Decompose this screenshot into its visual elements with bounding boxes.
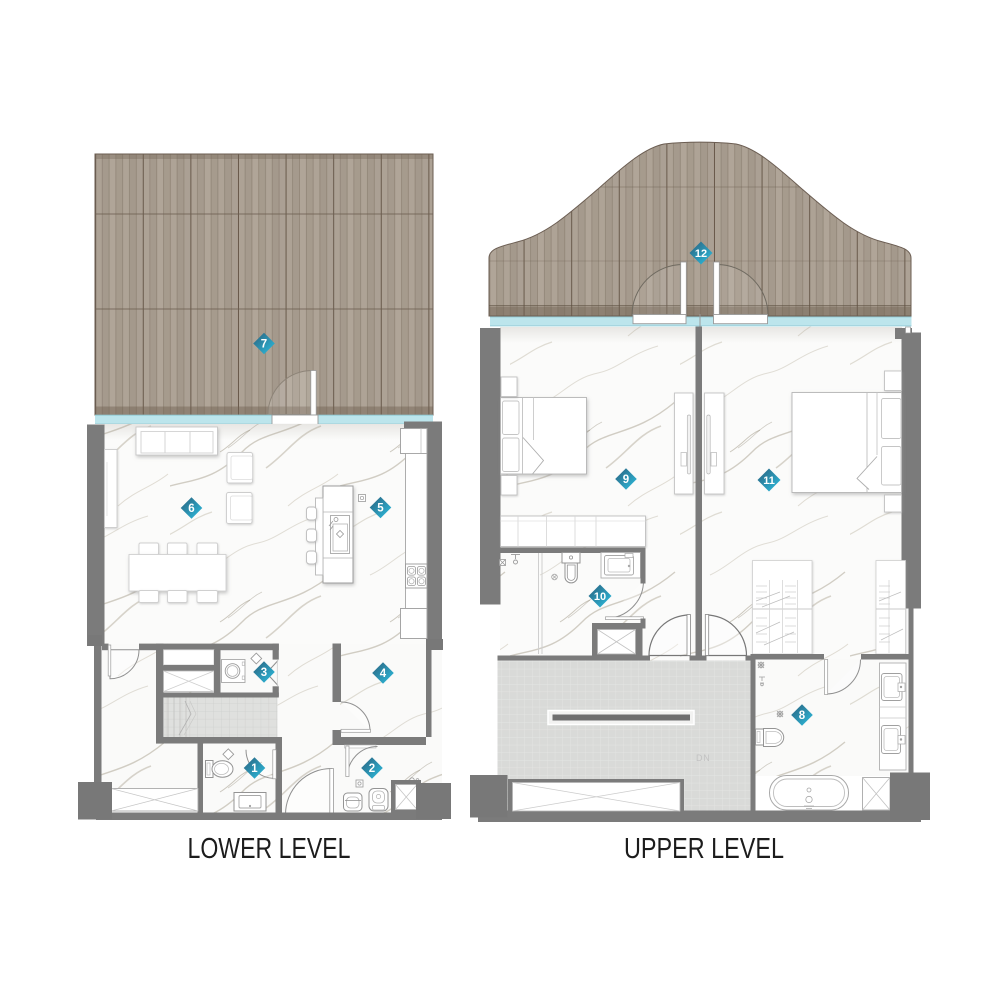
svg-text:2: 2	[369, 763, 375, 775]
svg-text:3: 3	[261, 667, 267, 679]
svg-text:4: 4	[380, 668, 387, 680]
svg-text:1: 1	[251, 763, 258, 775]
svg-text:8: 8	[799, 710, 806, 722]
svg-text:6: 6	[188, 503, 194, 515]
svg-text:9: 9	[623, 474, 629, 486]
svg-text:11: 11	[763, 475, 775, 487]
svg-text:LOWER LEVEL: LOWER LEVEL	[188, 833, 351, 865]
svg-text:5: 5	[377, 503, 384, 515]
svg-text:UPPER LEVEL: UPPER LEVEL	[624, 833, 784, 865]
svg-text:10: 10	[594, 591, 606, 603]
svg-text:12: 12	[695, 248, 707, 260]
svg-text:DN: DN	[696, 753, 711, 763]
svg-text:7: 7	[261, 339, 267, 351]
